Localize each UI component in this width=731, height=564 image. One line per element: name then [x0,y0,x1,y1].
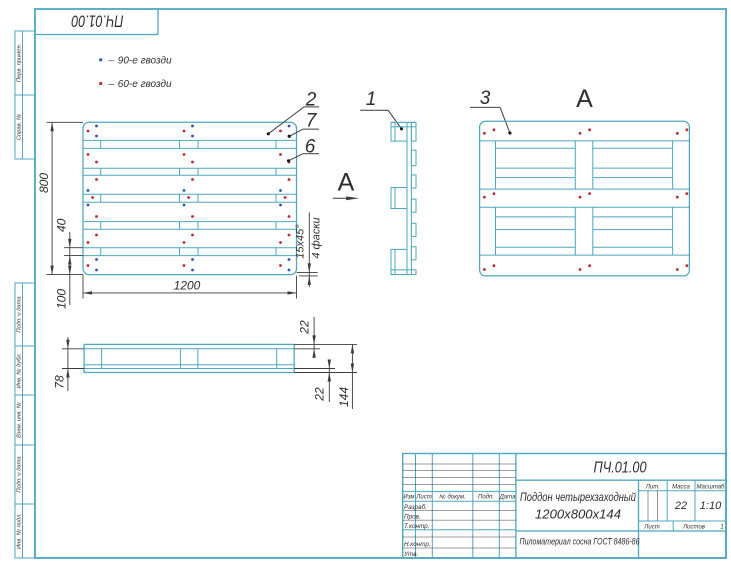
svg-text:Инв. № дубл.: Инв. № дубл. [17,353,23,389]
svg-text:144: 144 [337,387,351,407]
svg-text:Н.контр.: Н.контр. [404,541,431,548]
svg-text:3: 3 [480,88,491,109]
svg-text:Инв. № подл.: Инв. № подл. [17,513,23,549]
svg-text:6: 6 [305,137,316,158]
svg-text:Изм: Изм [403,495,414,501]
svg-text:22: 22 [674,500,687,512]
svg-text:1: 1 [720,525,723,531]
svg-text:Листов: Листов [682,525,705,531]
svg-text:Лит.: Лит. [645,484,660,490]
svg-text:Т.контр.: Т.контр. [404,523,429,530]
svg-text:Подп. и дата: Подп. и дата [17,296,23,333]
svg-text:Масштаб: Масштаб [696,484,725,490]
svg-text:1:10: 1:10 [700,500,722,512]
svg-text:Лист: Лист [415,495,431,501]
svg-text:–: – [108,79,115,90]
svg-text:100: 100 [55,289,69,309]
svg-text:15х45°: 15х45° [295,224,307,259]
svg-text:7: 7 [306,111,318,132]
svg-text:4 фаски: 4 фаски [311,217,323,258]
svg-text:ПЧ.01.00: ПЧ.01.00 [71,12,123,31]
svg-text:1200х800х144: 1200х800х144 [535,507,621,522]
svg-text:Разраб.: Разраб. [404,503,427,511]
svg-text:Лист: Лист [643,525,659,531]
svg-text:60-е гвозди: 60-е гвозди [118,79,172,90]
svg-text:800: 800 [37,173,51,193]
svg-text:Перв. примен.: Перв. примен. [17,44,23,83]
svg-text:Пров.: Пров. [404,513,421,520]
svg-text:Утв.: Утв. [403,551,418,558]
svg-text:1: 1 [366,89,377,110]
svg-text:40: 40 [55,218,69,232]
svg-text:Поддон четырехзаходный: Поддон четырехзаходный [520,492,636,504]
svg-text:Пиломатериал сосна ГОСТ 8486-: Пиломатериал сосна ГОСТ 8486-86 [520,537,641,547]
svg-text:22: 22 [313,387,327,402]
svg-text:Взам. инв. №: Взам. инв. № [17,402,23,438]
svg-text:90-е гвозди: 90-е гвозди [118,55,172,66]
svg-text:A: A [338,169,355,197]
svg-text:Справ. №: Справ. № [17,114,23,140]
svg-text:78: 78 [53,375,67,389]
svg-text:–: – [108,55,115,66]
svg-text:1200: 1200 [174,279,201,293]
svg-text:A: A [576,85,593,113]
svg-text:ПЧ.01.00: ПЧ.01.00 [594,460,647,477]
svg-text:№ докум.: № докум. [439,494,465,501]
svg-text:Подп. и дата: Подп. и дата [17,456,23,493]
svg-text:Подп.: Подп. [478,495,494,501]
svg-text:Масса: Масса [672,484,690,490]
svg-text:22: 22 [298,320,312,335]
svg-text:Дата: Дата [499,495,516,501]
